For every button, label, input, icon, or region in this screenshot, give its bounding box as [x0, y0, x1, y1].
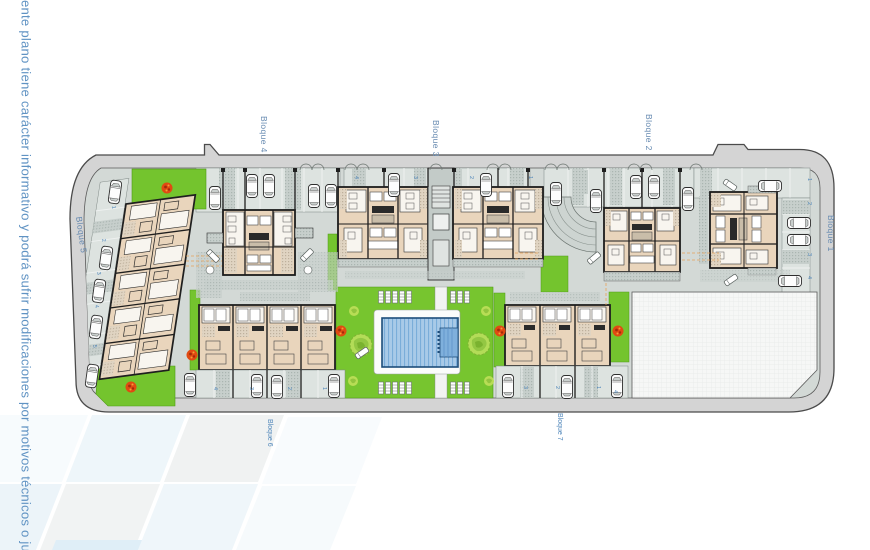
svg-text:2: 2 [468, 176, 474, 179]
svg-text:3: 3 [806, 253, 812, 256]
svg-text:Bloque 4: Bloque 4 [259, 116, 269, 153]
svg-text:4: 4 [612, 390, 618, 393]
svg-text:4: 4 [212, 387, 218, 390]
svg-text:1: 1 [321, 387, 327, 390]
svg-text:Bloque 2: Bloque 2 [644, 114, 654, 151]
svg-text:ente plano tiene carácter info: ente plano tiene carácter informativo y … [19, 0, 34, 550]
svg-text:Bloque 1: Bloque 1 [826, 215, 836, 252]
svg-text:2: 2 [806, 202, 812, 205]
svg-text:1: 1 [806, 178, 812, 181]
svg-text:Bloque 3: Bloque 3 [431, 120, 441, 157]
svg-text:1: 1 [527, 176, 533, 179]
svg-text:4: 4 [353, 176, 359, 179]
svg-text:4: 4 [806, 276, 812, 279]
svg-text:2: 2 [554, 386, 560, 389]
svg-text:Bloque 7: Bloque 7 [556, 413, 563, 441]
svg-text:3: 3 [248, 387, 254, 390]
svg-text:2: 2 [286, 387, 292, 390]
svg-text:Bloque 6: Bloque 6 [266, 419, 273, 447]
svg-text:1: 1 [595, 386, 601, 389]
svg-text:3: 3 [412, 176, 418, 179]
svg-text:3: 3 [522, 386, 528, 389]
